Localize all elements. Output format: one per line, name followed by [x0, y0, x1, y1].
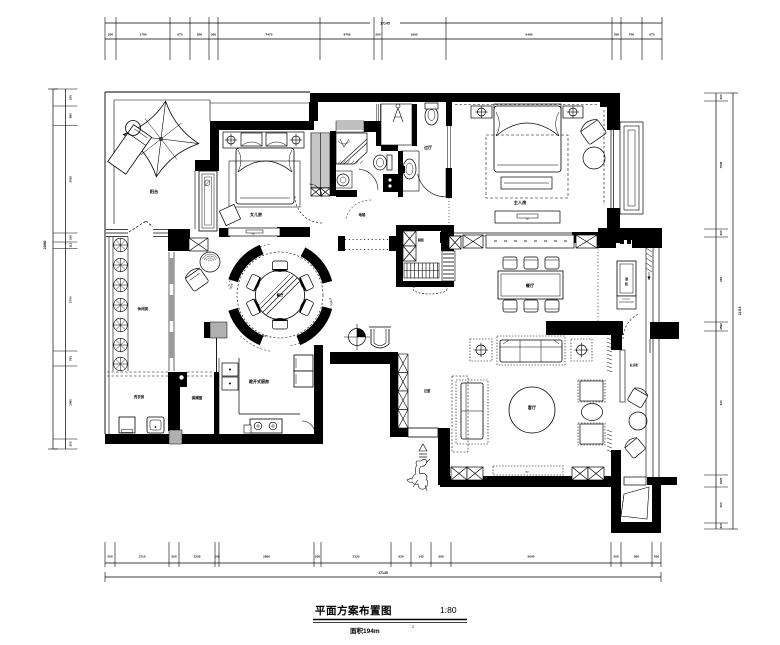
- svg-text:200: 200: [614, 33, 619, 37]
- svg-text:TV: TV: [525, 217, 529, 221]
- svg-text:5600: 5600: [528, 555, 535, 559]
- svg-text:200: 200: [719, 230, 723, 235]
- svg-text:300: 300: [171, 555, 176, 559]
- svg-text:地毯: 地毯: [359, 212, 366, 217]
- svg-text:7545: 7545: [719, 161, 723, 168]
- svg-text:餐厅: 餐厅: [525, 282, 535, 289]
- svg-text:200: 200: [108, 33, 113, 37]
- svg-text:5460: 5460: [526, 33, 533, 37]
- svg-text:112: 112: [69, 243, 73, 248]
- svg-text:200: 200: [69, 441, 73, 446]
- svg-text:洗衣房: 洗衣房: [134, 394, 145, 399]
- svg-text:17145: 17145: [380, 22, 390, 26]
- svg-text:4590: 4590: [719, 323, 723, 330]
- svg-text:2: 2: [412, 625, 414, 629]
- svg-text:200: 200: [69, 95, 73, 100]
- svg-text:900: 900: [634, 555, 639, 559]
- svg-text:675: 675: [177, 33, 182, 37]
- svg-text:女儿房: 女儿房: [250, 211, 262, 217]
- svg-text:240: 240: [719, 400, 723, 405]
- svg-text:2900: 2900: [263, 555, 270, 559]
- svg-text:阳台: 阳台: [150, 188, 158, 195]
- svg-text:2700: 2700: [69, 296, 73, 303]
- svg-text:酒: 酒: [625, 276, 628, 281]
- svg-text:700: 700: [629, 33, 634, 37]
- svg-text:3030: 3030: [69, 176, 73, 183]
- svg-text:1060: 1060: [69, 399, 73, 406]
- svg-text:1520: 1520: [719, 477, 723, 484]
- svg-text:1:80: 1:80: [440, 605, 457, 615]
- svg-text:200: 200: [719, 523, 723, 528]
- svg-text:TV: TV: [525, 470, 529, 474]
- svg-text:200: 200: [315, 555, 320, 559]
- svg-text:763: 763: [69, 356, 73, 361]
- svg-text:200: 200: [719, 502, 723, 507]
- svg-text:玄关柜: 玄关柜: [630, 362, 639, 367]
- svg-text:TV: TV: [251, 232, 255, 236]
- svg-text:390: 390: [438, 555, 443, 559]
- svg-text:1700: 1700: [140, 33, 147, 37]
- svg-text:鞋柜: 鞋柜: [418, 237, 424, 242]
- svg-text:200: 200: [211, 33, 216, 37]
- svg-text:过厅: 过厅: [424, 144, 432, 150]
- svg-text:680: 680: [69, 113, 73, 118]
- svg-text:主人房: 主人房: [514, 199, 527, 206]
- svg-text:过道: 过道: [424, 388, 431, 393]
- svg-text:620: 620: [398, 555, 403, 559]
- svg-text:200: 200: [107, 555, 112, 559]
- svg-text:500: 500: [197, 33, 202, 37]
- svg-text:保姆室: 保姆室: [191, 395, 203, 400]
- svg-text:200: 200: [654, 555, 659, 559]
- svg-text:1200: 1200: [194, 555, 201, 559]
- svg-text:休闲房: 休闲房: [137, 306, 149, 311]
- svg-text:敞开式厨房: 敞开式厨房: [249, 378, 269, 384]
- svg-text:9700: 9700: [344, 33, 351, 37]
- svg-text:柜: 柜: [624, 281, 628, 286]
- svg-text:2120: 2120: [353, 555, 360, 559]
- svg-text:12115: 12115: [738, 306, 742, 315]
- svg-text:675: 675: [649, 33, 654, 37]
- svg-text:200: 200: [719, 94, 723, 99]
- svg-text:平面方案布置图: 平面方案布置图: [315, 604, 392, 617]
- svg-text:7475: 7475: [266, 33, 273, 37]
- svg-text:餐厅: 餐厅: [276, 293, 284, 298]
- svg-text:1900: 1900: [411, 33, 418, 37]
- svg-text:17145: 17145: [378, 571, 388, 575]
- svg-text:225: 225: [719, 277, 723, 282]
- svg-text:200: 200: [613, 555, 618, 559]
- svg-text:1710: 1710: [139, 555, 146, 559]
- svg-text:145: 145: [418, 555, 423, 559]
- svg-text:客厅: 客厅: [527, 404, 537, 411]
- svg-text:面积194m: 面积194m: [350, 626, 380, 635]
- svg-text:200: 200: [375, 33, 380, 37]
- svg-text:100: 100: [214, 555, 219, 559]
- svg-text:10880: 10880: [43, 240, 47, 249]
- svg-text:150: 150: [69, 235, 73, 240]
